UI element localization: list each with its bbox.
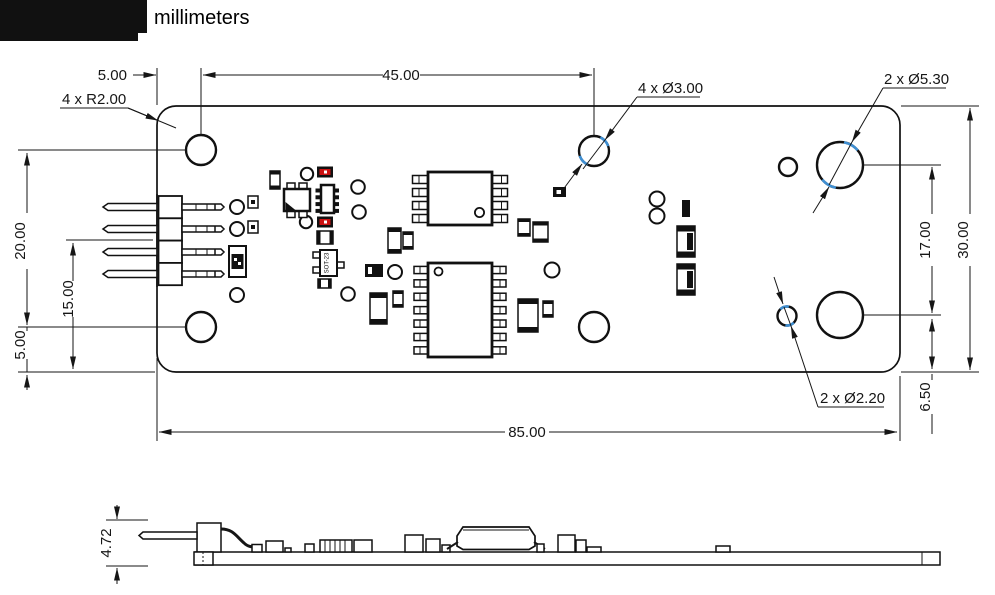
drawing-svg: millimeters <box>0 0 995 595</box>
pcb-side-view: 4.72 <box>98 505 940 584</box>
sot23-label: SOT-23 <box>325 252 331 273</box>
svg-text:15.00: 15.00 <box>60 280 77 318</box>
pcb-dimension-drawing: millimeters <box>0 0 995 595</box>
svg-text:4.72: 4.72 <box>98 528 115 557</box>
small-hole-top-right <box>779 158 797 176</box>
dim-hole-column-spacing: 20.00 <box>12 153 29 325</box>
dim-board-width: 85.00 <box>159 424 897 441</box>
mounting-hole-bottom-mid <box>579 312 609 342</box>
board-profile <box>195 552 940 565</box>
svg-text:5.00: 5.00 <box>98 67 127 84</box>
dim-right-hole-spacing: 17.00 <box>917 167 934 313</box>
unit-label: millimeters <box>154 7 250 29</box>
component-soic14 <box>414 263 506 357</box>
svg-text:20.00: 20.00 <box>12 222 29 260</box>
component-crystal <box>229 246 246 277</box>
side-components <box>266 527 730 552</box>
svg-text:2 x Ø2.20: 2 x Ø2.20 <box>820 390 885 407</box>
dim-edge-to-hole: 5.00 <box>98 67 156 84</box>
svg-text:6.50: 6.50 <box>917 382 934 411</box>
large-hole-bottom-right <box>817 292 863 338</box>
mounting-hole-top-left <box>186 135 216 165</box>
dim-hole-to-bottom-edge: 5.00 <box>12 327 29 390</box>
dim-hole-spacing: 45.00 <box>203 67 592 84</box>
mounting-hole-bottom-left <box>186 312 216 342</box>
svg-text:2 x Ø5.30: 2 x Ø5.30 <box>884 71 949 88</box>
svg-text:4 x Ø3.00: 4 x Ø3.00 <box>638 80 703 97</box>
svg-text:30.00: 30.00 <box>955 221 972 259</box>
pcb-top-view: SOT-23 <box>103 106 900 372</box>
dim-board-height: 30.00 <box>955 108 972 370</box>
dim-overall-height: 4.72 <box>98 505 148 584</box>
svg-text:85.00: 85.00 <box>508 424 546 441</box>
redacted-logo <box>0 0 147 41</box>
svg-text:5.00: 5.00 <box>12 330 29 359</box>
dim-pin-row-to-bottom: 15.00 <box>60 243 77 369</box>
dim-right-hole-to-edge: 6.50 <box>917 319 934 434</box>
svg-text:17.00: 17.00 <box>917 221 934 259</box>
component-soic8 <box>413 172 508 225</box>
svg-text:4 x R2.00: 4 x R2.00 <box>62 91 126 108</box>
svg-text:45.00: 45.00 <box>382 67 420 84</box>
